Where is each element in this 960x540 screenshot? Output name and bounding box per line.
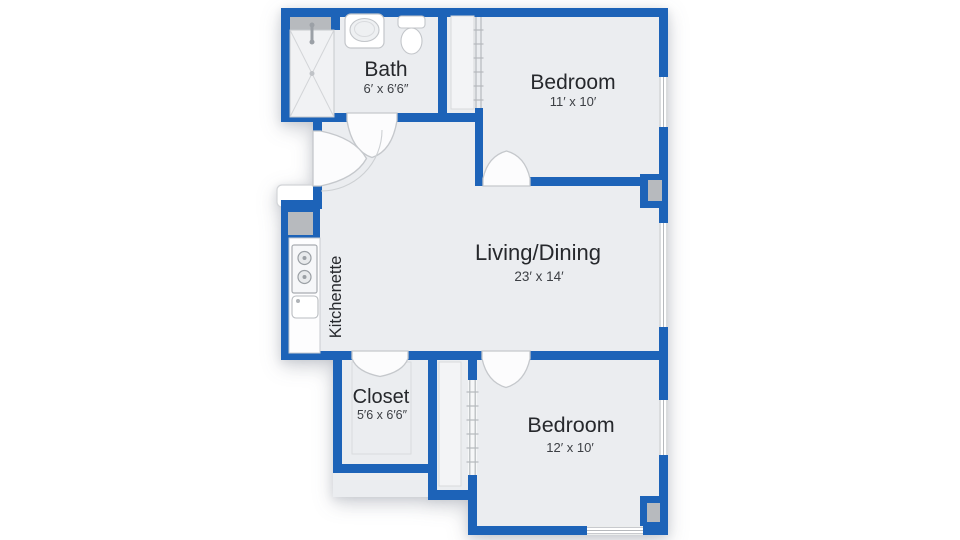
wall-segment	[530, 351, 668, 360]
wall-segment	[475, 108, 483, 186]
wall-segment	[659, 17, 668, 77]
wall-segment	[397, 113, 483, 122]
room-dimensions: 12′ x 10′	[546, 440, 594, 455]
floor-plan: Bath 6′ x 6′6″ Bedroom 11′ x 10′ Living/…	[0, 0, 960, 540]
column-fill	[647, 503, 660, 522]
wall-segment	[530, 177, 640, 186]
wall-segment	[659, 127, 668, 174]
room-label: Kitchenette	[327, 256, 345, 339]
room-dimensions: 5′6 x 6′6″	[357, 408, 408, 422]
room-label: Bedroom	[530, 71, 615, 94]
wall-segment	[659, 208, 668, 223]
refrigerator-icon	[281, 205, 320, 241]
room-label: Bath	[364, 58, 407, 81]
wall-segment	[468, 351, 477, 380]
shower-icon	[290, 23, 334, 118]
room-label: Bedroom	[527, 413, 614, 437]
window-glyph	[659, 77, 668, 127]
room-label: Closet	[353, 386, 410, 408]
room-dimensions: 6′ x 6′6″	[364, 81, 409, 96]
sink-icon	[292, 296, 318, 318]
floor-plan-page: Bath 6′ x 6′6″ Bedroom 11′ x 10′ Living/…	[0, 0, 960, 540]
stove-icon	[292, 245, 317, 293]
window-glyph	[587, 526, 643, 535]
window-glyph	[659, 400, 668, 455]
column-fill	[648, 180, 662, 201]
wall-segment	[468, 526, 587, 535]
room-label: Living/Dining	[475, 240, 601, 265]
wall-segment	[428, 353, 437, 500]
wall-segment	[659, 455, 668, 498]
wall-segment	[281, 8, 290, 122]
room-dimensions: 11′ x 10′	[550, 94, 597, 109]
room-dimensions: 23′ x 14′	[514, 269, 564, 284]
bathtub-icon	[345, 14, 384, 48]
wall-segment	[333, 353, 342, 473]
closet-niche	[439, 362, 461, 486]
wall-segment	[333, 464, 437, 473]
wall-segment	[659, 327, 668, 400]
wall-segment	[331, 17, 340, 30]
window-glyph	[659, 223, 668, 327]
wall-segment	[438, 8, 447, 122]
bedroom2-closet	[439, 362, 479, 486]
closet-niche	[451, 16, 474, 109]
